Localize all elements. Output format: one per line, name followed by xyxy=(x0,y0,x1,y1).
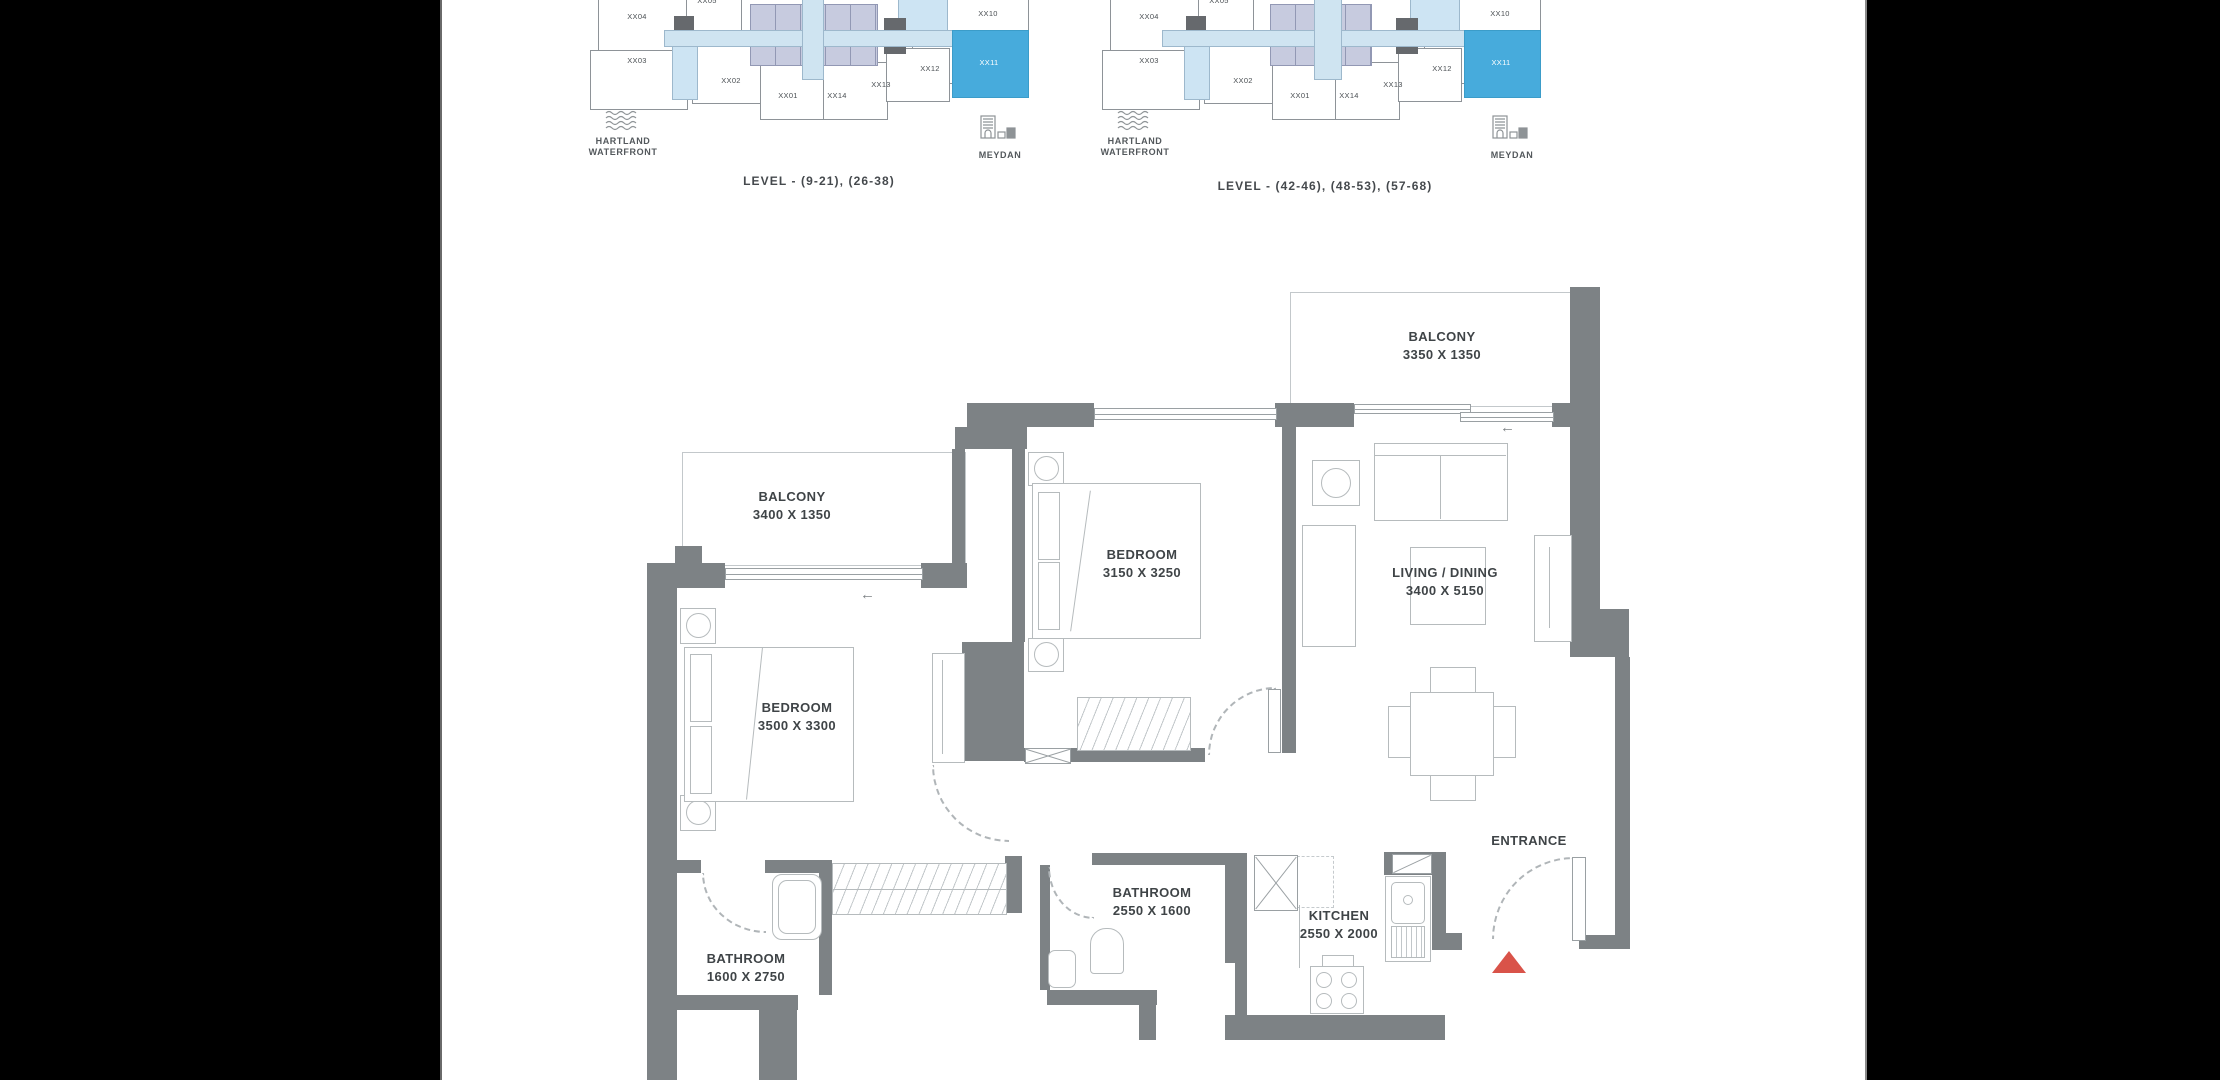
wall xyxy=(677,860,701,873)
wall xyxy=(1047,990,1157,1005)
wall xyxy=(1092,853,1247,865)
room-dims: 1600 X 2750 xyxy=(707,968,786,986)
room-label-living: LIVING / DINING 3400 X 5150 xyxy=(1392,564,1498,600)
bedroom-door-arc xyxy=(932,765,1009,842)
cabinet-box xyxy=(1392,854,1432,874)
dining-chair xyxy=(1491,706,1516,758)
entrance-marker xyxy=(1492,951,1526,973)
wall xyxy=(1225,865,1247,963)
wall xyxy=(675,546,702,566)
window-arrow-icon: ← xyxy=(860,590,875,600)
dining-chair xyxy=(1430,667,1476,695)
tv-unit xyxy=(1534,535,1572,642)
wall xyxy=(1225,1015,1445,1040)
room-dims: 3400 X 5150 xyxy=(1392,582,1498,600)
wall xyxy=(1579,935,1630,949)
duct-xbox xyxy=(1025,748,1071,764)
wall xyxy=(759,1010,797,1080)
room-name: KITCHEN xyxy=(1300,907,1378,925)
wall xyxy=(1570,609,1629,657)
wardrobe-line xyxy=(942,660,943,754)
wall xyxy=(1282,427,1296,753)
wall xyxy=(647,563,677,1080)
wall xyxy=(962,642,1024,761)
wall xyxy=(1437,933,1462,950)
room-label-balcony-top: BALCONY 3350 X 1350 xyxy=(1403,328,1481,364)
room-name: BEDROOM xyxy=(1103,546,1181,564)
pillow xyxy=(690,654,712,722)
room-name: BALCONY xyxy=(753,488,831,506)
lamp-icon xyxy=(1034,456,1059,481)
door-leaf xyxy=(1268,689,1281,753)
stove xyxy=(1310,966,1364,1014)
room-dims: 3400 X 1350 xyxy=(753,506,831,524)
bedroom-door-arc xyxy=(1208,687,1276,755)
wall xyxy=(921,563,967,588)
window xyxy=(725,568,923,580)
tv-line xyxy=(1549,547,1550,628)
room-label-bathroom-left: BATHROOM 1600 X 2750 xyxy=(707,950,786,986)
balcony-slider-window xyxy=(1354,404,1471,414)
lamp-icon xyxy=(686,613,711,638)
wall xyxy=(1005,856,1022,913)
room-label-balcony-left: BALCONY 3400 X 1350 xyxy=(753,488,831,524)
entrance-door-arc xyxy=(1492,857,1574,939)
window-arrow-icon: ← xyxy=(1500,423,1515,433)
entrance-door-leaf xyxy=(1572,857,1586,941)
room-name: BEDROOM xyxy=(758,699,836,717)
lamp-icon xyxy=(1321,468,1351,498)
dining-chair xyxy=(1430,774,1476,801)
room-name: BATHROOM xyxy=(707,950,786,968)
lamp-icon xyxy=(686,800,711,825)
room-name: BALCONY xyxy=(1403,328,1481,346)
wall xyxy=(1139,1005,1156,1040)
drainer-lines xyxy=(1391,926,1425,958)
pillow xyxy=(1038,562,1060,630)
wall xyxy=(952,449,965,565)
pillow xyxy=(690,726,712,794)
wall xyxy=(967,403,1094,427)
shaft-xbox xyxy=(1254,855,1298,911)
room-dims: 2550 X 2000 xyxy=(1300,925,1378,943)
room-label-kitchen: KITCHEN 2550 X 2000 xyxy=(1300,907,1378,943)
floorplan-page: XX04 XX05 XX03 XX02 XX01 XX14 XX13 XX12 … xyxy=(440,0,1867,1080)
wall xyxy=(1570,287,1600,609)
wall xyxy=(1615,657,1630,948)
lamp-icon xyxy=(1034,642,1059,667)
room-dims: 3350 X 1350 xyxy=(1403,346,1481,364)
wardrobe xyxy=(932,653,965,763)
window xyxy=(1094,408,1277,420)
room-dims: 3150 X 3250 xyxy=(1103,564,1181,582)
entrance-label: ENTRANCE xyxy=(1491,832,1566,850)
bathroom-door-arc xyxy=(1048,867,1094,919)
room-name: LIVING / DINING xyxy=(1392,564,1498,582)
unit-floor-plan: ← ← xyxy=(440,0,1867,1080)
wall xyxy=(647,563,725,588)
room-dims: 2550 X 1600 xyxy=(1113,902,1192,920)
room-label-bathroom-mid: BATHROOM 2550 X 1600 xyxy=(1113,884,1192,920)
toilet xyxy=(1090,928,1124,974)
room-label-bedroom-mid: BEDROOM 3150 X 3250 xyxy=(1103,546,1181,582)
room-name: BATHROOM xyxy=(1113,884,1192,902)
wall xyxy=(1275,403,1354,427)
drain-icon xyxy=(1403,895,1413,905)
wardrobe-hatched xyxy=(1077,697,1191,751)
dining-table xyxy=(1410,692,1494,776)
pillow xyxy=(1038,492,1060,560)
armchair xyxy=(1302,525,1356,647)
bathtub-inner xyxy=(778,880,816,934)
wall xyxy=(1012,427,1025,642)
sofa-divider xyxy=(1440,455,1441,519)
hall-closet-hatched xyxy=(832,863,1007,915)
bathroom-door-arc xyxy=(702,873,766,933)
room-label-bedroom-left: BEDROOM 3500 X 3300 xyxy=(758,699,836,735)
wall xyxy=(677,995,798,1010)
room-dims: 3500 X 3300 xyxy=(758,717,836,735)
sink xyxy=(1048,950,1076,988)
